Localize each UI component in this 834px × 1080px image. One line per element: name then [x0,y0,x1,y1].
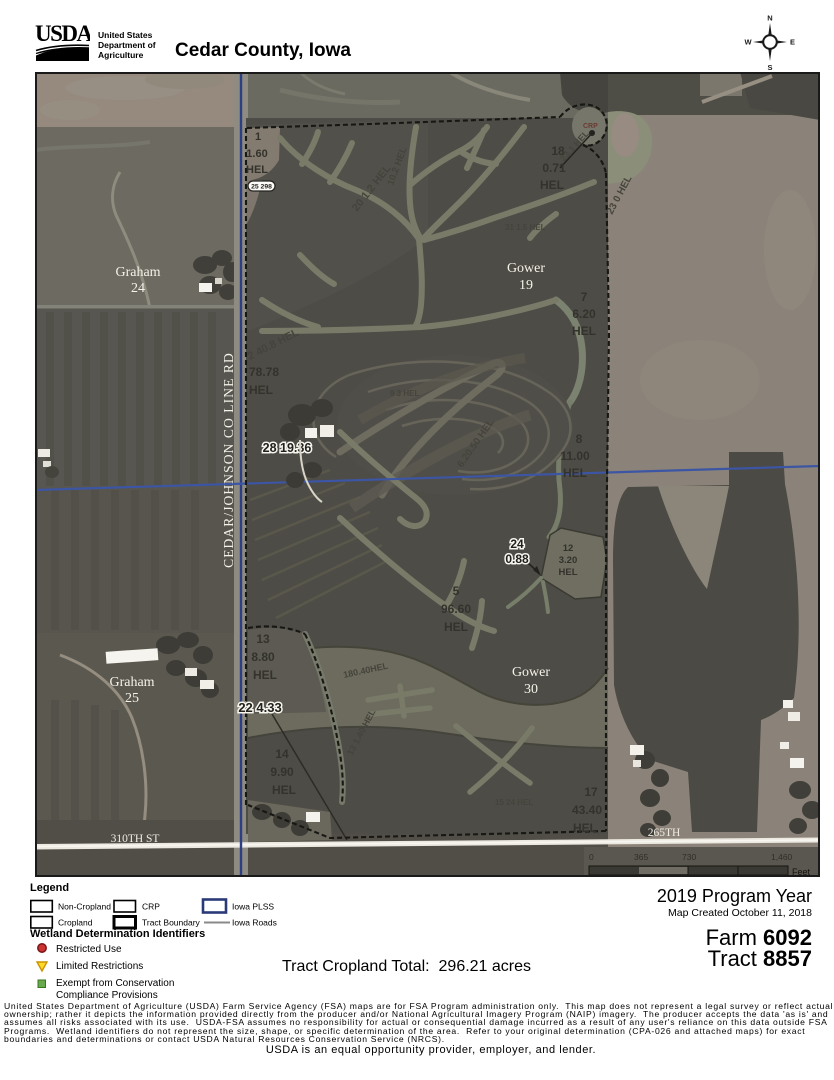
svg-text:24: 24 [510,537,524,551]
svg-text:25 298: 25 298 [251,184,272,191]
svg-text:0.71: 0.71 [542,161,566,175]
svg-text:13: 13 [256,632,270,646]
svg-text:12: 12 [563,543,574,554]
svg-text:HEL: HEL [563,466,587,480]
svg-text:CRP: CRP [142,902,160,912]
svg-text:265TH: 265TH [648,827,681,839]
svg-text:17: 17 [584,785,598,799]
svg-text:N: N [767,14,772,23]
svg-text:11.00: 11.00 [560,449,590,463]
svg-text:Non-Cropland: Non-Cropland [58,902,111,912]
svg-text:HEL: HEL [249,383,273,397]
svg-text:USDA: USDA [35,21,90,46]
svg-text:Exempt from Conservation: Exempt from Conservation [56,978,174,989]
svg-text:9 3 HEL: 9 3 HEL [390,389,419,398]
svg-text:30: 30 [524,682,538,697]
svg-text:Limited Restrictions: Limited Restrictions [56,961,143,972]
svg-text:1.60: 1.60 [246,148,267,160]
svg-text:CRP: CRP [583,123,598,130]
svg-text:5: 5 [453,584,460,598]
svg-text:1,460: 1,460 [771,852,793,862]
svg-text:31 1.5 HEL: 31 1.5 HEL [505,223,546,232]
svg-text:Compliance Provisions: Compliance Provisions [56,990,158,1001]
svg-text:W: W [744,38,752,47]
svg-text:S: S [767,63,772,72]
svg-text:14: 14 [275,747,289,761]
svg-text:78.78: 78.78 [249,365,279,379]
svg-text:Tract Boundary: Tract Boundary [142,918,201,928]
svg-text:730: 730 [682,852,696,862]
svg-text:1: 1 [255,131,261,143]
svg-text:Iowa PLSS: Iowa PLSS [232,902,274,912]
svg-text:24: 24 [131,281,145,296]
svg-text:Graham: Graham [109,675,154,690]
svg-text:HEL: HEL [272,783,296,797]
svg-text:15 24 HEL: 15 24 HEL [495,798,533,807]
svg-text:HEL: HEL [572,324,596,338]
svg-text:43.40: 43.40 [572,803,602,817]
svg-text:CEDAR/JOHNSON CO LINE RD: CEDAR/JOHNSON CO LINE RD [221,352,236,568]
svg-text:Gower: Gower [507,261,545,276]
svg-text:9.90: 9.90 [270,765,294,779]
svg-text:E: E [790,38,795,47]
svg-text:Graham: Graham [115,265,160,280]
svg-text:HEL: HEL [444,620,468,634]
svg-text:7: 7 [581,290,588,304]
svg-text:Restricted Use: Restricted Use [56,944,122,955]
svg-text:19: 19 [519,278,533,293]
svg-text:8: 8 [576,432,583,446]
svg-text:22 4.33: 22 4.33 [238,700,281,715]
svg-text:25: 25 [125,691,139,706]
svg-text:310TH ST: 310TH ST [111,833,160,845]
svg-text:96.60: 96.60 [441,602,471,616]
svg-text:Iowa Roads: Iowa Roads [232,918,277,928]
svg-text:HEL: HEL [253,668,277,682]
svg-text:0: 0 [589,852,594,862]
svg-text:3.20: 3.20 [559,555,578,566]
svg-text:Cropland: Cropland [58,918,93,928]
svg-text:HEL: HEL [246,164,268,176]
svg-text:6.20: 6.20 [572,307,596,321]
svg-text:0.88: 0.88 [505,552,529,566]
svg-text:365: 365 [634,852,648,862]
svg-text:8.80: 8.80 [251,650,275,664]
svg-text:HEL: HEL [559,567,578,578]
svg-text:28 19.36: 28 19.36 [263,441,312,455]
svg-text:Gower: Gower [512,665,550,680]
svg-text:HEL: HEL [573,821,597,835]
svg-text:HEL: HEL [540,178,564,192]
